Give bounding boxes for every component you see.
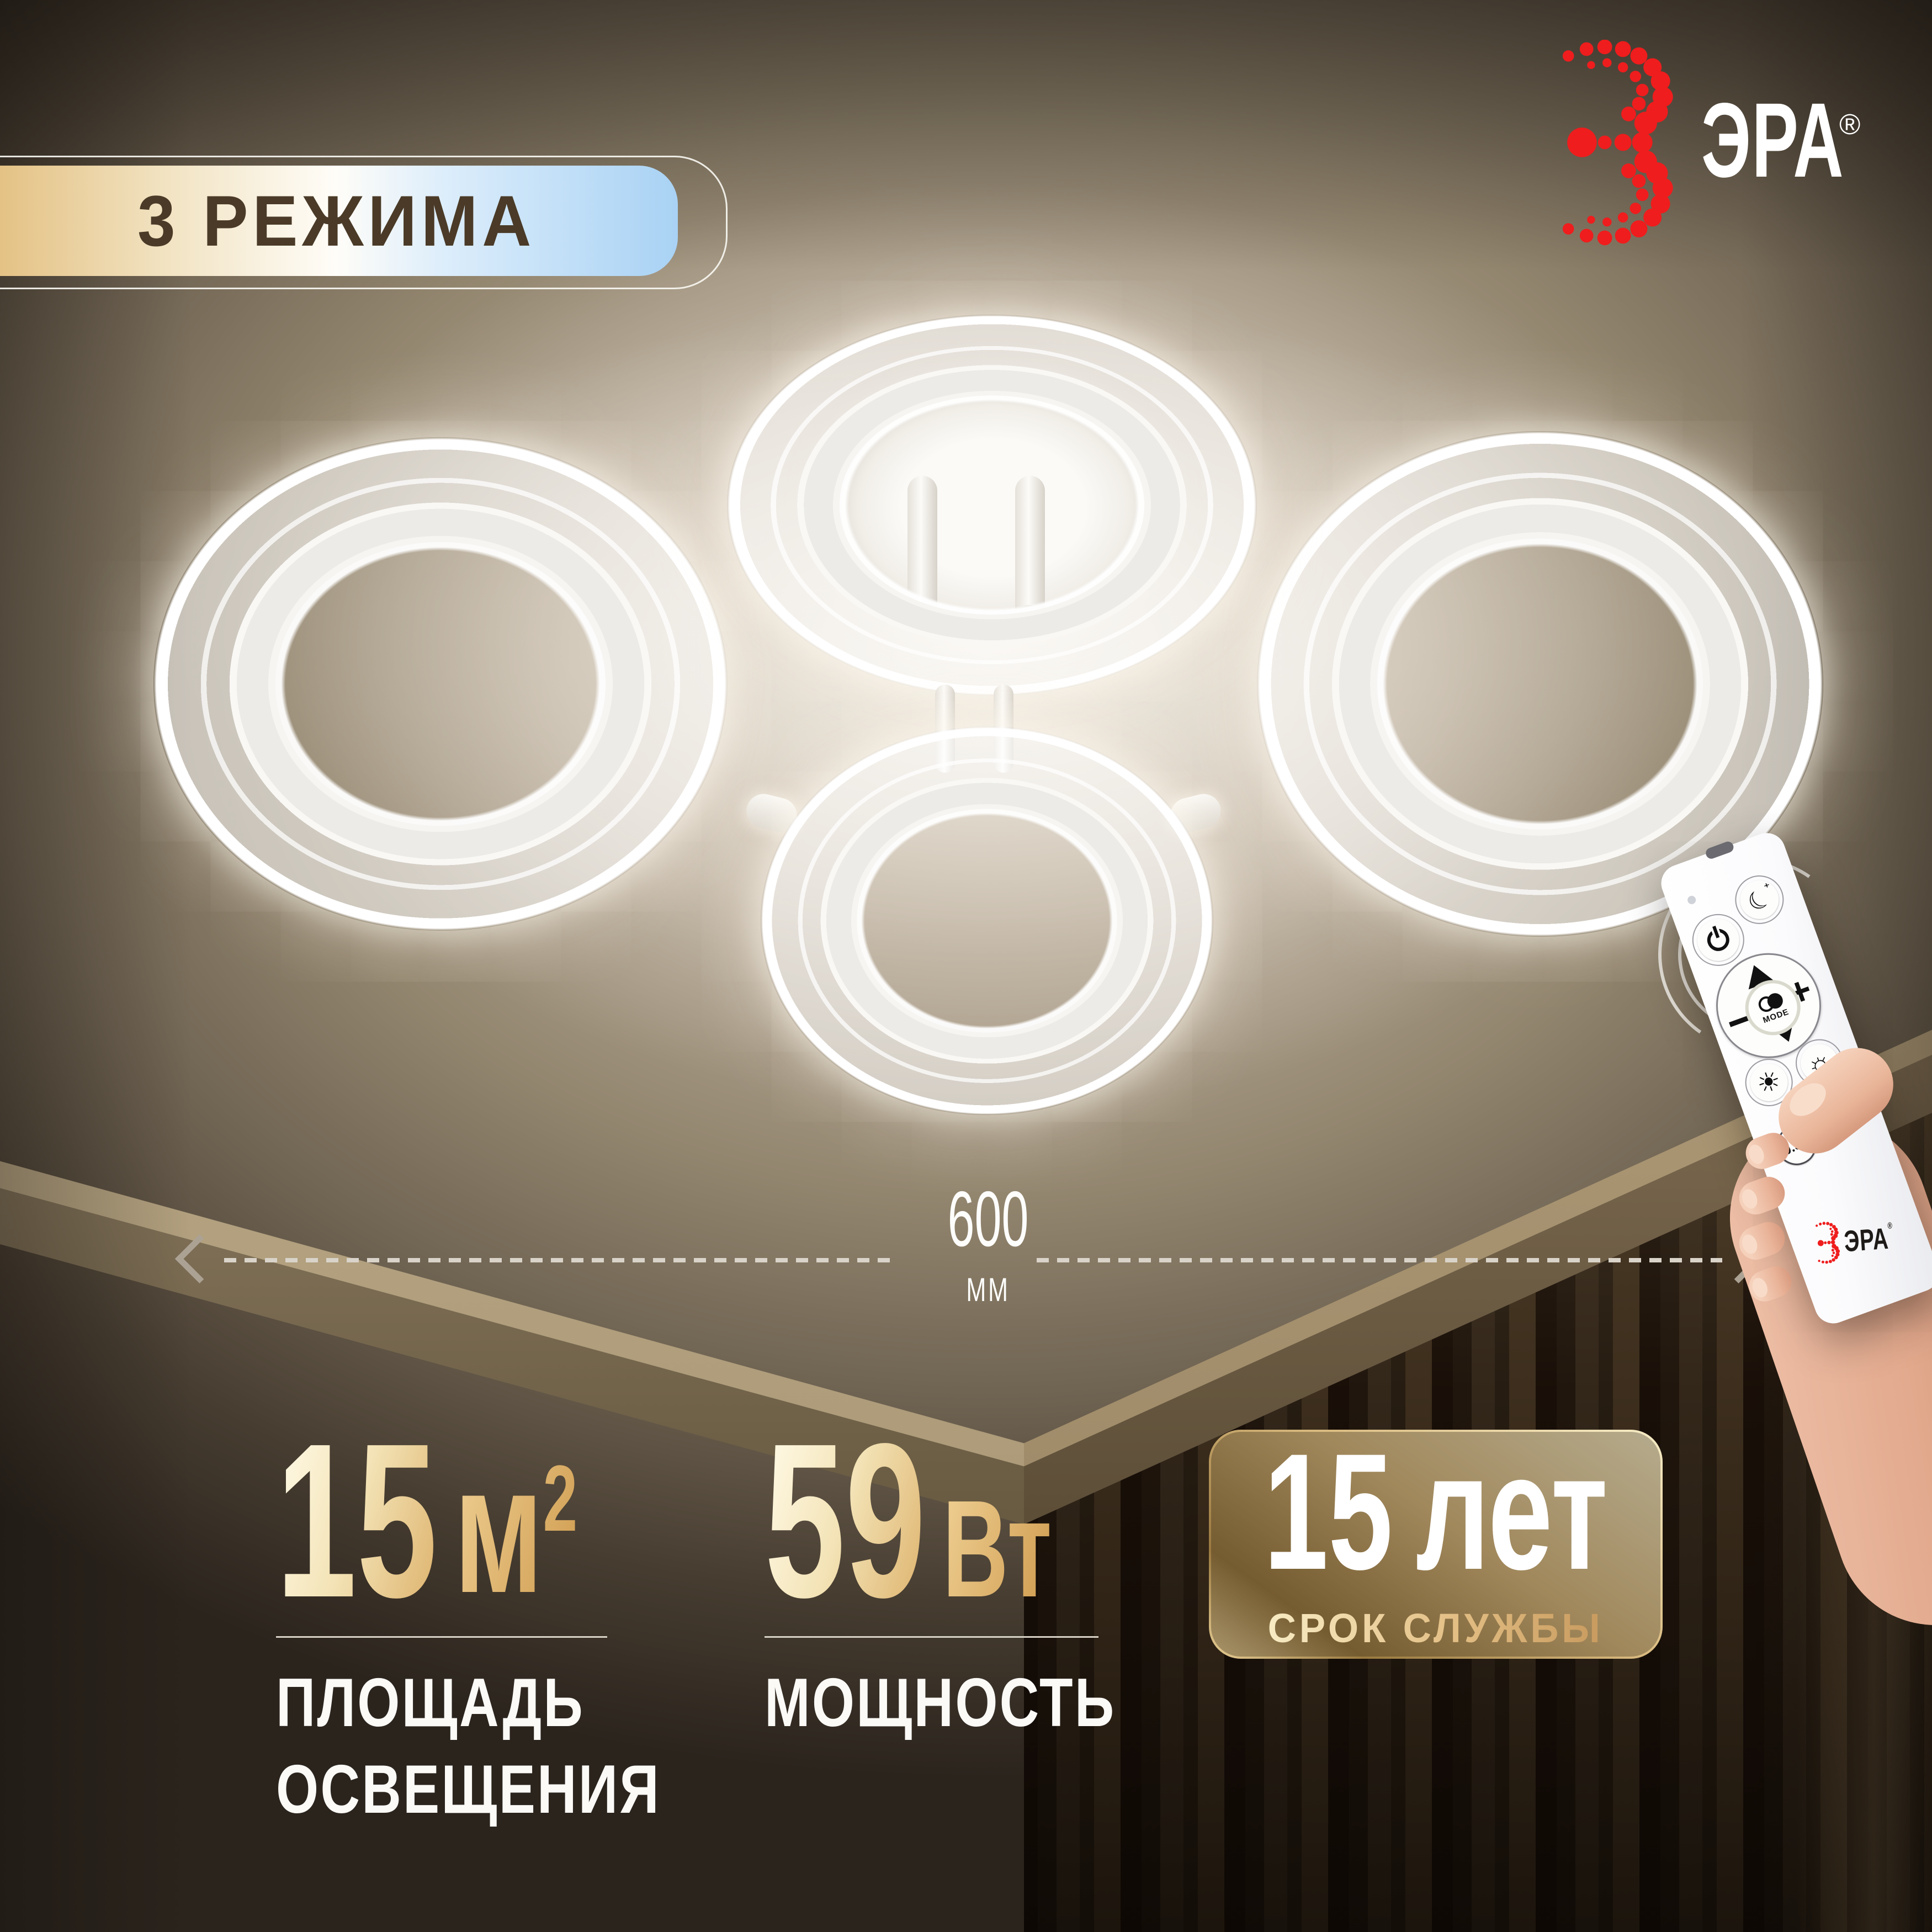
spec-area-unit-sup: 2 bbox=[543, 1446, 577, 1551]
spec-area-value-row: 15 м2 bbox=[276, 1431, 593, 1611]
dimension-line-left bbox=[224, 1258, 893, 1262]
spec-lifetime-unit: лет bbox=[1416, 1437, 1608, 1586]
dimension-line-right bbox=[1037, 1258, 1722, 1262]
spec-lifetime-value-row: 15 лет bbox=[1264, 1437, 1607, 1586]
spec-lifetime-label: СРОК СЛУЖБЫ bbox=[1268, 1605, 1604, 1652]
remote-brand-registered: ® bbox=[1887, 1221, 1892, 1231]
spec-area-label: ПЛОЩАДЬ ОСВЕЩЕНИЯ bbox=[276, 1660, 661, 1832]
spec-power-value: 59 bbox=[765, 1431, 926, 1611]
spec-power: 59 Вт МОЩНОСТЬ bbox=[765, 1431, 1203, 1747]
night-mode-button: ☾ ⁺ bbox=[1735, 875, 1785, 925]
era-logo-mark-icon bbox=[1546, 40, 1696, 247]
spec-power-unit: Вт bbox=[943, 1487, 1052, 1611]
sun-filled-icon: ☀ bbox=[1753, 1064, 1786, 1101]
spec-area-value: 15 bbox=[276, 1431, 437, 1611]
spec-power-value-row: 59 Вт bbox=[765, 1431, 1054, 1611]
modes-badge-label: 3 РЕЖИМА bbox=[137, 179, 535, 262]
dimension-unit: ММ bbox=[928, 1271, 1048, 1309]
lamp-ring-left bbox=[153, 437, 728, 931]
spec-power-label: МОЩНОСТЬ bbox=[765, 1660, 1116, 1746]
brand-name: ЭРА bbox=[1701, 87, 1844, 193]
lamp-ring-small bbox=[761, 726, 1213, 1115]
spec-area-unit: м2 bbox=[454, 1447, 578, 1611]
remote-brand-name: ЭРА® bbox=[1843, 1221, 1894, 1259]
led-indicator bbox=[1686, 895, 1697, 905]
moon-icon: ☾ bbox=[1741, 881, 1778, 918]
era-logo-mark-small-icon bbox=[1812, 1218, 1845, 1268]
spec-area-label-line2: ОСВЕЩЕНИЯ bbox=[276, 1747, 661, 1833]
spec-lifetime-inner: 15 лет СРОК СЛУЖБЫ bbox=[1211, 1432, 1660, 1657]
spec-lifetime-box: 15 лет СРОК СЛУЖБЫ bbox=[1209, 1430, 1663, 1659]
remote-brand-logo: ЭРА® bbox=[1812, 1213, 1914, 1267]
spec-area: 15 м2 ПЛОЩАДЬ ОСВЕЩЕНИЯ bbox=[276, 1431, 757, 1833]
power-icon bbox=[1704, 926, 1732, 954]
spec-area-label-line1: ПЛОЩАДЬ bbox=[276, 1660, 661, 1746]
brand-registered-mark: ® bbox=[1839, 108, 1860, 141]
product-banner: 3 РЕЖИМА ЭРА ® 600 ММ 15 м2 ПЛОЩАДЬ ОСВЕ… bbox=[0, 0, 1932, 1932]
modes-badge: 3 РЕЖИМА bbox=[0, 166, 678, 276]
spec-lifetime-value: 15 bbox=[1264, 1437, 1393, 1586]
power-button bbox=[1691, 913, 1745, 967]
sparkle-icon: ⁺ bbox=[1762, 879, 1773, 895]
lamp-ring-top bbox=[727, 315, 1257, 696]
dimension-value: 600 bbox=[930, 1180, 1047, 1259]
